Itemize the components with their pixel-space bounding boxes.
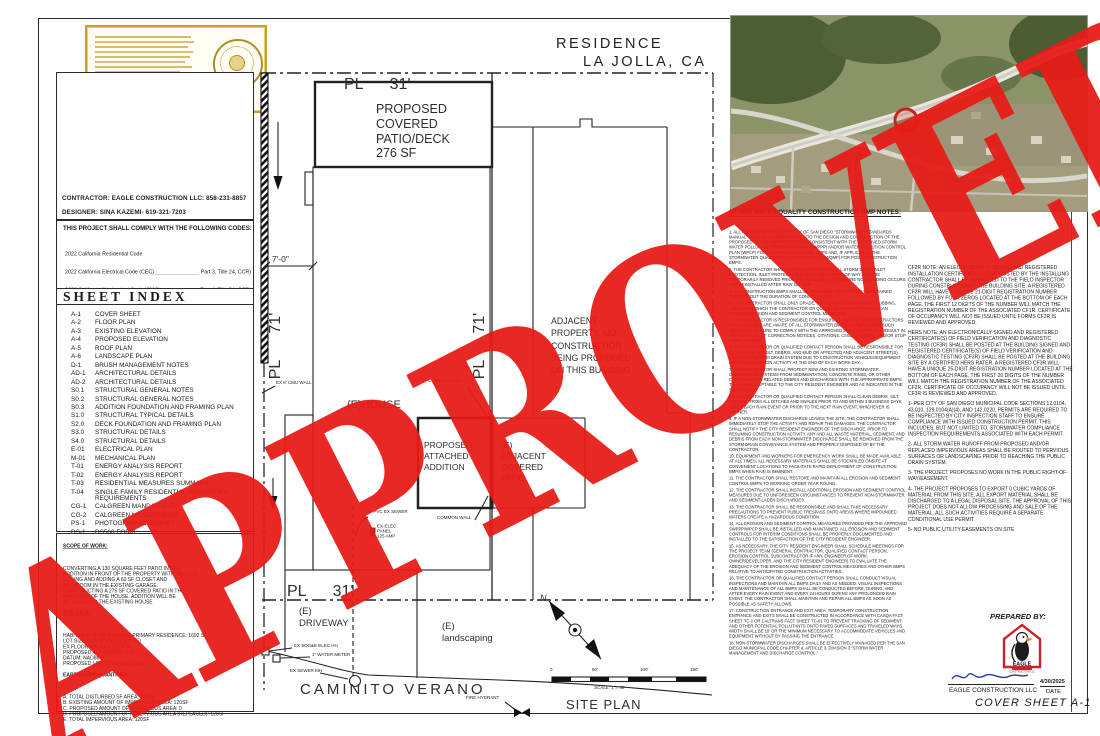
scale-label: SCALE: 1"= 50'	[594, 685, 625, 690]
bmp-note-paragraph: 16. THE CONTRACTOR OR QUALIFIED CONTACT …	[729, 576, 907, 607]
right-note-paragraph: 3- THE PROJECT PROPOSES NO WORK IN THE P…	[908, 470, 1073, 482]
cover-sheet-drawing: RESIDENCE LA JOLLA, CA	[0, 0, 1100, 736]
street-name-label: CAMINITO VERANO	[300, 681, 486, 698]
bmp-notes-list: 1. ALL REQUIREMENTS OF THE CITY OF SAN D…	[729, 219, 907, 657]
right-note-paragraph: 5- NO PUBLIC UTILITY EASEMENTS ON SITE	[908, 527, 1073, 533]
cmu-wall-label: EX 6' CMU WALL	[276, 380, 311, 385]
house-label: (E)HOUSE	[347, 399, 401, 411]
bmp-note-paragraph: 6. THE CONTRACTOR OR QUALIFIED CONTACT P…	[729, 345, 907, 366]
water-meter-symbol	[273, 655, 280, 662]
right-notes-list: CF2R NOTE: AN ELECTRONICALLY SIGNED AND …	[908, 253, 1073, 537]
bmp-note-paragraph: 14. ALL EROSION AND SEDIMENT CONTROL MEA…	[729, 521, 907, 542]
front-setback-text: 7'-0"	[272, 254, 289, 264]
scale-tick-50: 50'	[592, 667, 598, 672]
fire-hydrant-label: FIRE HYDRANT	[466, 695, 499, 700]
logo-text: EAGLE	[1013, 662, 1032, 668]
prepared-by-label: PREPARED BY:	[990, 612, 1046, 621]
pl-right-label: PL 71'	[471, 296, 489, 396]
sewer-label-leader	[356, 517, 368, 536]
bmp-note-paragraph: 7. THE CONTRACTOR SHALL PROTECT NEW AND …	[729, 367, 907, 393]
pl-bottom-label: PL 31'	[287, 583, 354, 601]
curb-line-left	[262, 650, 470, 679]
sewer-pipe-label: 4" PVC EX SEWER	[368, 509, 408, 514]
addition-label: PROPOSED ATTACHED ADDITION	[424, 440, 472, 473]
bmp-note-paragraph: 11. THE CONTRACTOR SHALL RESTORE AND MAI…	[729, 476, 907, 486]
right-note-paragraph: 4- THE PROJECT PROPOSES TO EXPORT 0 CUBI…	[908, 486, 1073, 523]
driveway-label: (E) DRIVEWAY	[299, 606, 349, 631]
landscaping-label: (E) landscaping	[442, 621, 493, 646]
bmp-note-paragraph: 4. THE CONTRACTOR SHALL ONLY GRADE, INCL…	[729, 301, 907, 316]
north-arrow-icon	[549, 601, 601, 659]
right-note-paragraph: CF2R NOTE: AN ELECTRONICALLY SIGNED AND …	[908, 265, 1073, 326]
sheet-title: COVER SHEET A-1	[975, 697, 1092, 709]
right-note-paragraph: 2- ALL STORM WATER RUNOFF FROM PROPOSED …	[908, 442, 1073, 466]
view-title: SITE PLAN	[566, 697, 641, 714]
common-wall-bottom-label: COMMON WALL	[437, 515, 471, 520]
elec-handhole-symbol	[262, 648, 269, 655]
patio-deck-label: PROPOSED COVERED PATIO/DECK 276 SF	[376, 102, 450, 161]
bmp-note-paragraph: 1. ALL REQUIREMENTS OF THE CITY OF SAN D…	[729, 229, 907, 265]
bmp-note-paragraph: 9. IF A NON-STORMWATER DISCHARGE LEAVES …	[729, 416, 907, 452]
bmp-note-paragraph: 15. AS NECESSARY, THE CITY RESIDENT ENGI…	[729, 543, 907, 574]
scale-tick-0: 0	[550, 667, 553, 672]
date-value: 4/30/2025	[1040, 679, 1065, 687]
date-label: DATE	[1046, 689, 1061, 695]
signature-scribble	[950, 668, 1032, 684]
scale-tick-100: 100'	[640, 667, 648, 672]
company-name: EAGLE CONSTRUCTION LLC	[949, 687, 1037, 694]
scale-bar	[552, 677, 706, 682]
bmp-note-paragraph: 5. THE CONTRACTOR IS RESPONSIBLE FOR ENS…	[729, 318, 907, 344]
right-note-paragraph: 1- PER CITY OF SAN DIEGO MUNICIPAL CODE …	[908, 401, 1073, 438]
bmp-note-paragraph: 2. THE CONTRACTOR SHALL INSTALL AND MAIN…	[729, 267, 907, 288]
common-wall-top-label: COMMON WALL	[428, 378, 462, 383]
fire-hydrant-symbol	[514, 708, 522, 717]
bmp-note-paragraph: 18. NON-STORMWATER DISCHARGES SHALL BE E…	[729, 640, 907, 655]
pl-top-label: PL 31'	[344, 76, 411, 94]
bmp-notes-heading: STORM WATER QUALITY CONSTRUCTION BMP NOT…	[729, 209, 901, 217]
bmp-note-paragraph: 17. CONSTRUCTION ENTRANCE AND EXIT AREA.…	[729, 608, 907, 639]
bmp-note-paragraph: 3. ALL CONSTRUCTION BMPS SHALL BE INSTAL…	[729, 289, 907, 299]
eagle-head	[1017, 633, 1028, 644]
bmp-note-paragraph: 12. THE CONTRACTOR SHALL INSTALL ADDITIO…	[729, 487, 907, 502]
sdge-handhole-label: EX SDG&E ELEC HH	[294, 643, 338, 648]
scale-tick-150: 150'	[690, 667, 698, 672]
sewer-mh-label: EX SEWER MH	[290, 668, 322, 673]
bmp-note-paragraph: 10. EQUIPMENT AND WORKERS FOR EMERGENCY …	[729, 454, 907, 475]
adjacent-property-note: ADJACENT PROPERTY. NO CONSTRUCTION BEING…	[551, 315, 631, 377]
north-label: N	[540, 593, 547, 603]
sewer-mh-leader	[320, 673, 348, 679]
right-note-paragraph: HERS NOTE: AN ELECTRONICALLY SIGNED AND …	[908, 330, 1073, 397]
bmp-note-paragraph: 13. THE CONTRACTOR SHALL BE RESPONSIBLE …	[729, 504, 907, 519]
signature-line	[948, 684, 1034, 685]
adjacent-patio-label: (E) ADJACENT COVERED PATIO	[501, 440, 546, 484]
eagle-logo: EAGLE CONSTRUCTION LLC	[1002, 623, 1042, 673]
elec-panel-label: EX-ELEC PANEL 125 AMP	[377, 524, 396, 539]
bmp-note-paragraph: 8. THE CONTRACTOR OR QUALIFIED CONTACT P…	[729, 394, 907, 415]
elec-panel-symbol	[370, 528, 375, 536]
water-meter-label: 1" WATER METER	[312, 652, 350, 657]
